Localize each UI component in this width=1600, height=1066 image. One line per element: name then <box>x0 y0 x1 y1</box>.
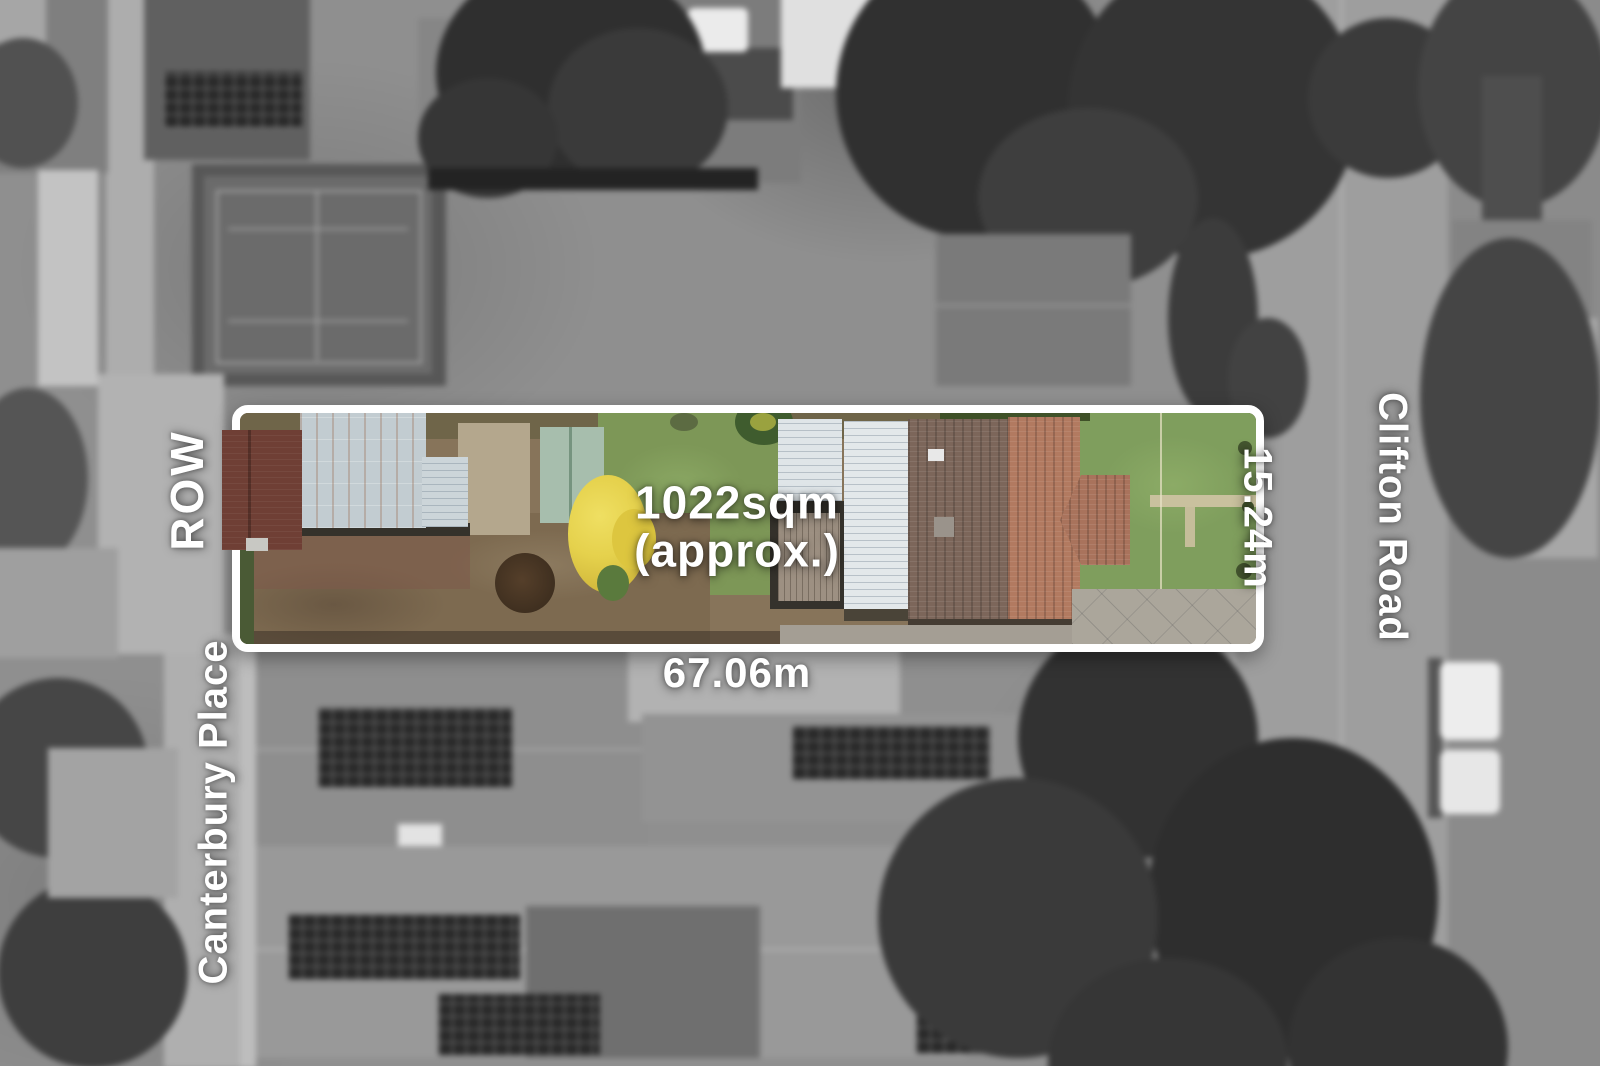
area-value: 1022sqm <box>634 479 840 527</box>
tree-canopy <box>0 878 188 1066</box>
solar-panel-array <box>164 72 302 128</box>
tennis-court-line <box>228 320 408 322</box>
lawn-patch <box>0 548 118 658</box>
side-hedge <box>240 541 254 644</box>
canterbury-place-footpath <box>240 634 256 1066</box>
driveway-strip <box>780 625 1072 644</box>
chimney <box>934 517 954 537</box>
bottom-fence-shadow <box>240 631 780 644</box>
clifton-road-label: Clifton Road <box>1370 392 1415 642</box>
dark-shrub <box>495 553 555 613</box>
shed-roof-small <box>422 457 468 527</box>
red-shed-ridge <box>248 430 251 550</box>
solar-panel-array <box>792 726 990 780</box>
roof-ridge-line <box>936 304 1131 307</box>
parked-trailer <box>1440 750 1500 814</box>
driveway-patch <box>48 748 178 898</box>
concrete-pad <box>458 423 530 535</box>
tennis-court-line <box>228 228 408 230</box>
area-approx: (approx.) <box>634 527 840 575</box>
row-label: ROW <box>160 429 214 550</box>
driveway-concrete <box>1072 589 1256 644</box>
roof-shadow <box>844 609 908 621</box>
garage-roof-corrugated <box>300 413 426 528</box>
area-label: 1022sqm (approx.) <box>634 479 840 576</box>
skylight <box>928 449 944 461</box>
tree-canopy <box>1420 238 1600 558</box>
tree-highlight <box>750 413 776 431</box>
shed-base-object <box>246 538 268 551</box>
house-roof <box>936 234 1131 386</box>
tennis-court-lines <box>216 190 422 364</box>
depth-measurement-label: 15.24m <box>1235 447 1280 589</box>
garden-bush <box>670 413 698 431</box>
canterbury-place-label: Canterbury Place <box>192 639 237 984</box>
green-bush <box>597 565 629 601</box>
red-shed-roof <box>222 430 302 550</box>
frontage-measurement-label: 67.06m <box>663 649 811 697</box>
tennis-court-line <box>316 190 318 360</box>
fence-line <box>1160 413 1162 589</box>
aerial-site-photo: ROW Canterbury Place Clifton Road 15.24m… <box>0 0 1600 1066</box>
solar-panel-array <box>438 994 600 1056</box>
solar-panel-array <box>288 914 520 980</box>
fence-shadow <box>428 168 758 190</box>
driveway-patch <box>0 0 46 43</box>
parked-truck <box>1440 662 1500 740</box>
solar-panel-array <box>318 708 512 788</box>
tree-canopy <box>548 28 728 188</box>
front-path-branch <box>1185 507 1195 547</box>
main-roof-weathered <box>908 419 1008 627</box>
light-building-roof <box>38 170 98 386</box>
